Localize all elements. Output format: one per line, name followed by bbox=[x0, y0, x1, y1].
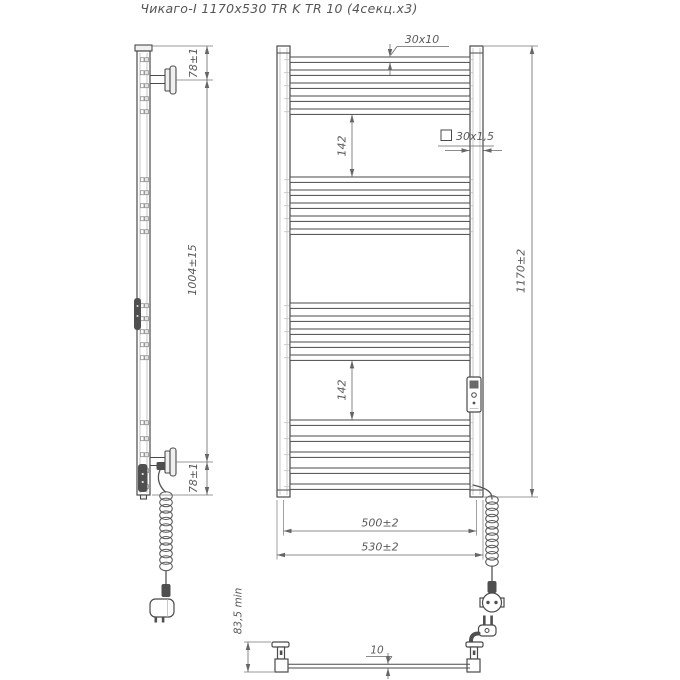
dim-mounting-width: 500±2 bbox=[284, 500, 477, 536]
dim-overall-width: 530±2 bbox=[277, 500, 483, 560]
dim-overall-height-label: 1170±2 bbox=[515, 249, 528, 293]
power-plug-side bbox=[150, 599, 174, 623]
side-post bbox=[137, 51, 150, 495]
side-power-cable bbox=[150, 462, 174, 623]
wall-bracket-top bbox=[150, 66, 176, 94]
dim-upper-gap: 142 bbox=[336, 114, 353, 177]
front-post-left bbox=[277, 46, 290, 497]
dim-tube-thickness-label: 10 bbox=[370, 645, 384, 657]
control-unit bbox=[467, 377, 481, 412]
cable-gland bbox=[157, 462, 166, 470]
dim-rung-profile: 30х10 bbox=[390, 33, 449, 75]
control-display bbox=[470, 381, 479, 389]
dim-mounting-height-label: 1004±15 bbox=[186, 244, 199, 295]
dim-overall-width-label: 530±2 bbox=[361, 541, 398, 554]
side-mid-housing bbox=[134, 298, 141, 330]
dim-wall-clearance-label: 83,5 min bbox=[233, 588, 245, 635]
front-power-cable bbox=[473, 485, 504, 612]
side-view-dimensions: 78±1 1004±15 78±1 bbox=[152, 46, 213, 495]
dim-bottom-bracket-label: 78±1 bbox=[187, 463, 200, 493]
cable-sleeve-right bbox=[488, 581, 497, 593]
dim-lower-gap-label: 142 bbox=[336, 380, 349, 401]
front-rungs bbox=[284, 57, 476, 489]
square-profile-symbol bbox=[441, 130, 452, 141]
dim-upper-gap-label: 142 bbox=[336, 136, 349, 157]
control-led bbox=[473, 402, 476, 405]
dim-top-bracket-label: 78±1 bbox=[187, 48, 200, 78]
coiled-cable-left bbox=[160, 492, 173, 571]
dim-lower-gap: 142 bbox=[336, 360, 353, 420]
bottom-view: 83,5 min 10 bbox=[233, 588, 497, 679]
coiled-cable-right bbox=[486, 496, 499, 567]
front-post-right bbox=[470, 46, 483, 497]
bottom-mount-left bbox=[272, 642, 289, 672]
towel-rail-technical-drawing: Чикаго-I 1170х530 TR K TR 10 (4секц.х3) bbox=[0, 0, 680, 680]
dim-overall-height: 1170±2 bbox=[484, 46, 538, 497]
cable-sleeve bbox=[162, 584, 171, 597]
dim-tube-thickness: 10 bbox=[366, 645, 392, 680]
power-plug-front bbox=[480, 593, 504, 612]
dim-mounting-width-label: 500±2 bbox=[361, 517, 398, 530]
heating-element bbox=[138, 464, 148, 492]
drawing-title: Чикаго-I 1170х530 TR K TR 10 (4секц.х3) bbox=[140, 1, 417, 16]
side-top-cap bbox=[135, 45, 152, 51]
dim-post-profile-label: 30х1,5 bbox=[456, 130, 494, 143]
dim-rung-profile-label: 30х10 bbox=[405, 33, 440, 46]
dim-wall-clearance: 83,5 min bbox=[233, 588, 275, 672]
side-view bbox=[134, 45, 176, 623]
side-bottom-knob bbox=[141, 495, 147, 499]
technical-drawing-page: Чикаго-I 1170х530 TR K TR 10 (4секц.х3) bbox=[0, 0, 680, 680]
